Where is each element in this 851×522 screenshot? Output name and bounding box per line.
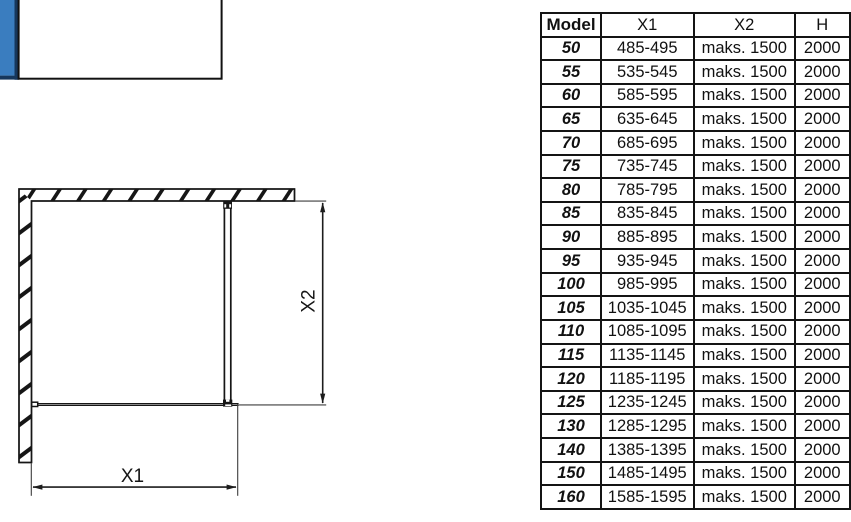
svg-text:X1: X1	[121, 466, 144, 487]
svg-text:X2: X2	[299, 289, 320, 312]
